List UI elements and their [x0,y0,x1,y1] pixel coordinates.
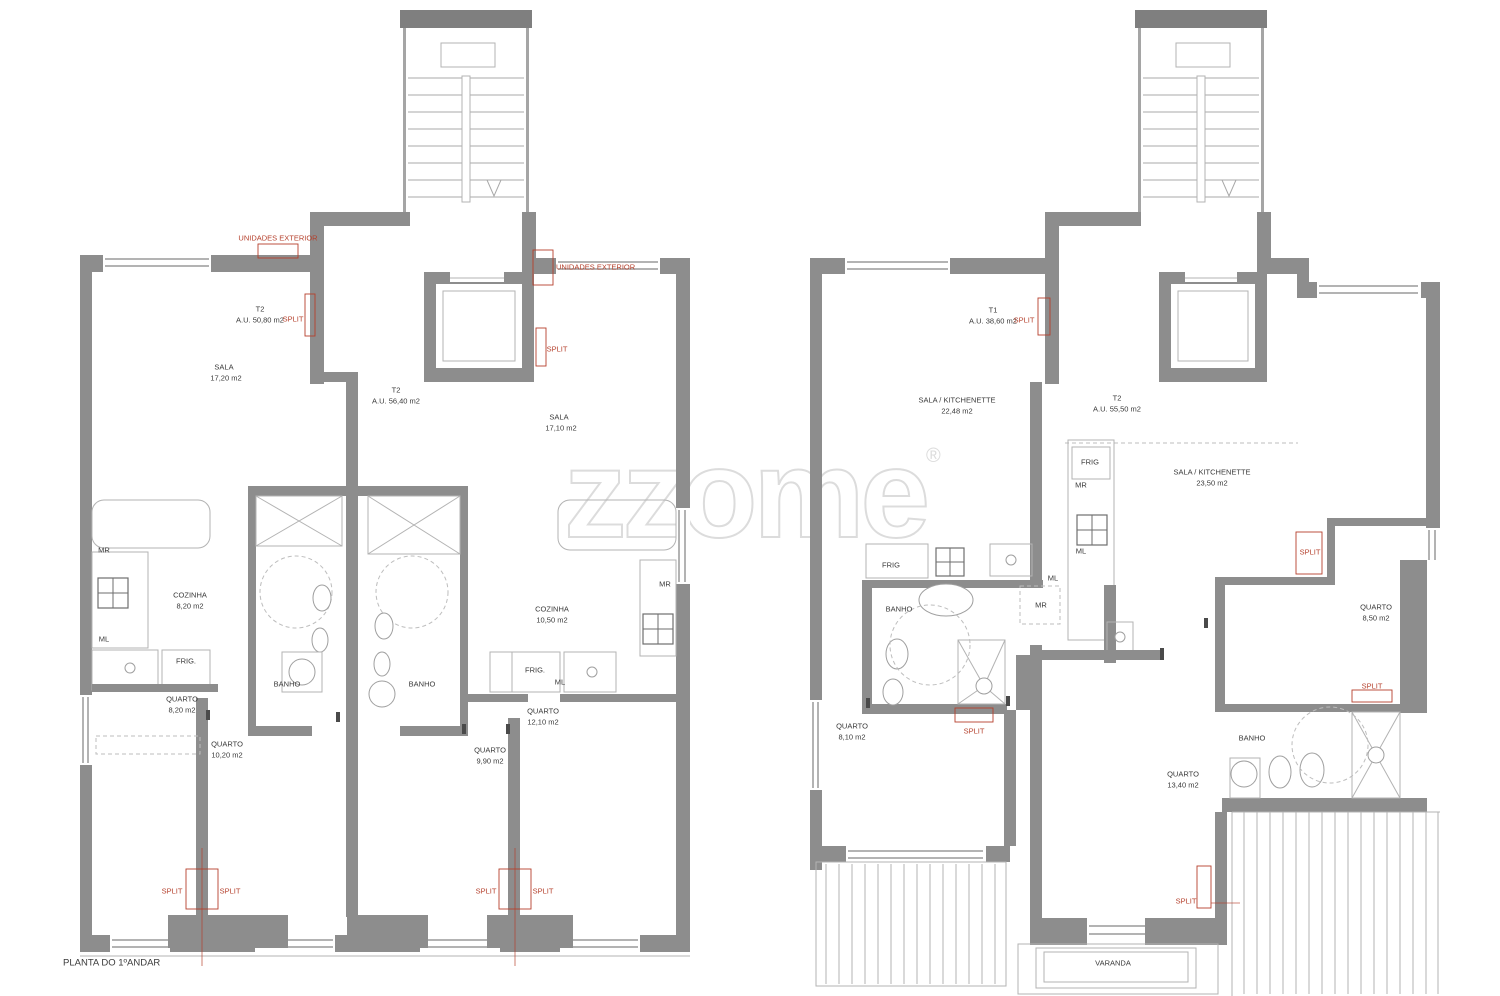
floorplan-sheet: zzome ® [0,0,1500,996]
watermark-registered-icon: ® [926,445,941,467]
floorplan-drawing: zzome ® [0,0,1500,996]
watermark-text: zzome [564,425,927,564]
